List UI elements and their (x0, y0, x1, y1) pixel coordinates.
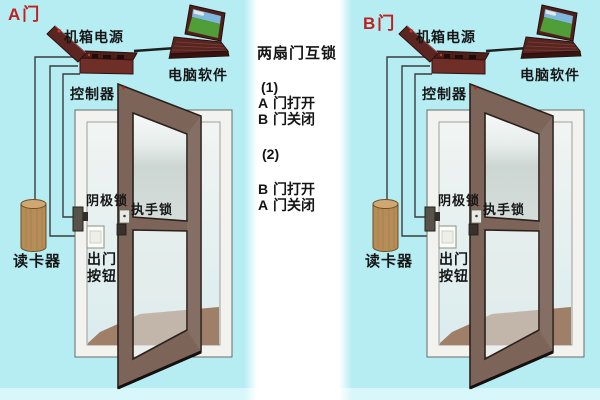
exit-button-label-line1: 出门 (439, 251, 469, 268)
exit-button-label: 出门 按钮 (439, 251, 469, 285)
handle-lock-label: 执手锁 (131, 203, 173, 218)
rule-1-lines: A门打开 B门关闭 (258, 95, 315, 127)
rule-door-key: B (258, 111, 273, 127)
exit-button-label: 出门 按钮 (87, 251, 117, 285)
rule-1-line-2: B门关闭 (258, 111, 315, 127)
rule-door-key: B (258, 181, 273, 197)
interlock-description-column: 两扇门互锁 (1) A门打开 B门关闭 (2) B门打开 A门关闭 (244, 0, 352, 400)
controller-label: 控制器 (422, 86, 467, 102)
cathode-lock-label: 阴极锁 (86, 194, 128, 209)
rule-2-line-2: A门关闭 (258, 197, 315, 213)
exit-button-label-line2: 按钮 (87, 268, 117, 285)
computer-software-label: 电脑软件 (168, 67, 228, 83)
card-reader-label: 读卡器 (13, 253, 61, 270)
door-b-title: B门 (363, 14, 396, 34)
rule-1-number: (1) (261, 79, 278, 95)
rule-door-state: 门关闭 (273, 197, 315, 213)
exit-button-label-line2: 按钮 (439, 268, 469, 285)
computer-software-label: 电脑软件 (520, 67, 580, 83)
rule-1-line-1: A门打开 (258, 95, 315, 111)
rule-2-line-1: B门打开 (258, 181, 315, 197)
handle-lock-label: 执手锁 (483, 203, 525, 218)
rule-door-state: 门打开 (273, 181, 315, 197)
rule-2-number: (2) (262, 146, 279, 162)
cathode-lock-label: 阴极锁 (438, 194, 480, 209)
rule-door-key: A (258, 95, 273, 111)
rule-door-key: A (258, 197, 273, 213)
door-b-panel: B门 机箱电源 电脑软件 控制器 阴极锁 执手锁 出门 按钮 读卡器 (352, 0, 600, 400)
rule-2-lines: B门打开 A门关闭 (258, 181, 315, 213)
controller-label: 控制器 (70, 86, 115, 102)
power-supply-label: 机箱电源 (416, 29, 476, 45)
door-a-title: A门 (8, 5, 41, 25)
power-supply-label: 机箱电源 (64, 29, 124, 45)
card-reader-label: 读卡器 (365, 253, 413, 270)
door-a-panel: A门 机箱电源 电脑软件 控制器 阴极锁 执手锁 出门 按钮 读卡器 (0, 0, 248, 400)
interlock-title: 两扇门互锁 (257, 42, 337, 63)
rule-door-state: 门打开 (273, 95, 315, 111)
rule-door-state: 门关闭 (273, 111, 315, 127)
exit-button-label-line1: 出门 (87, 251, 117, 268)
